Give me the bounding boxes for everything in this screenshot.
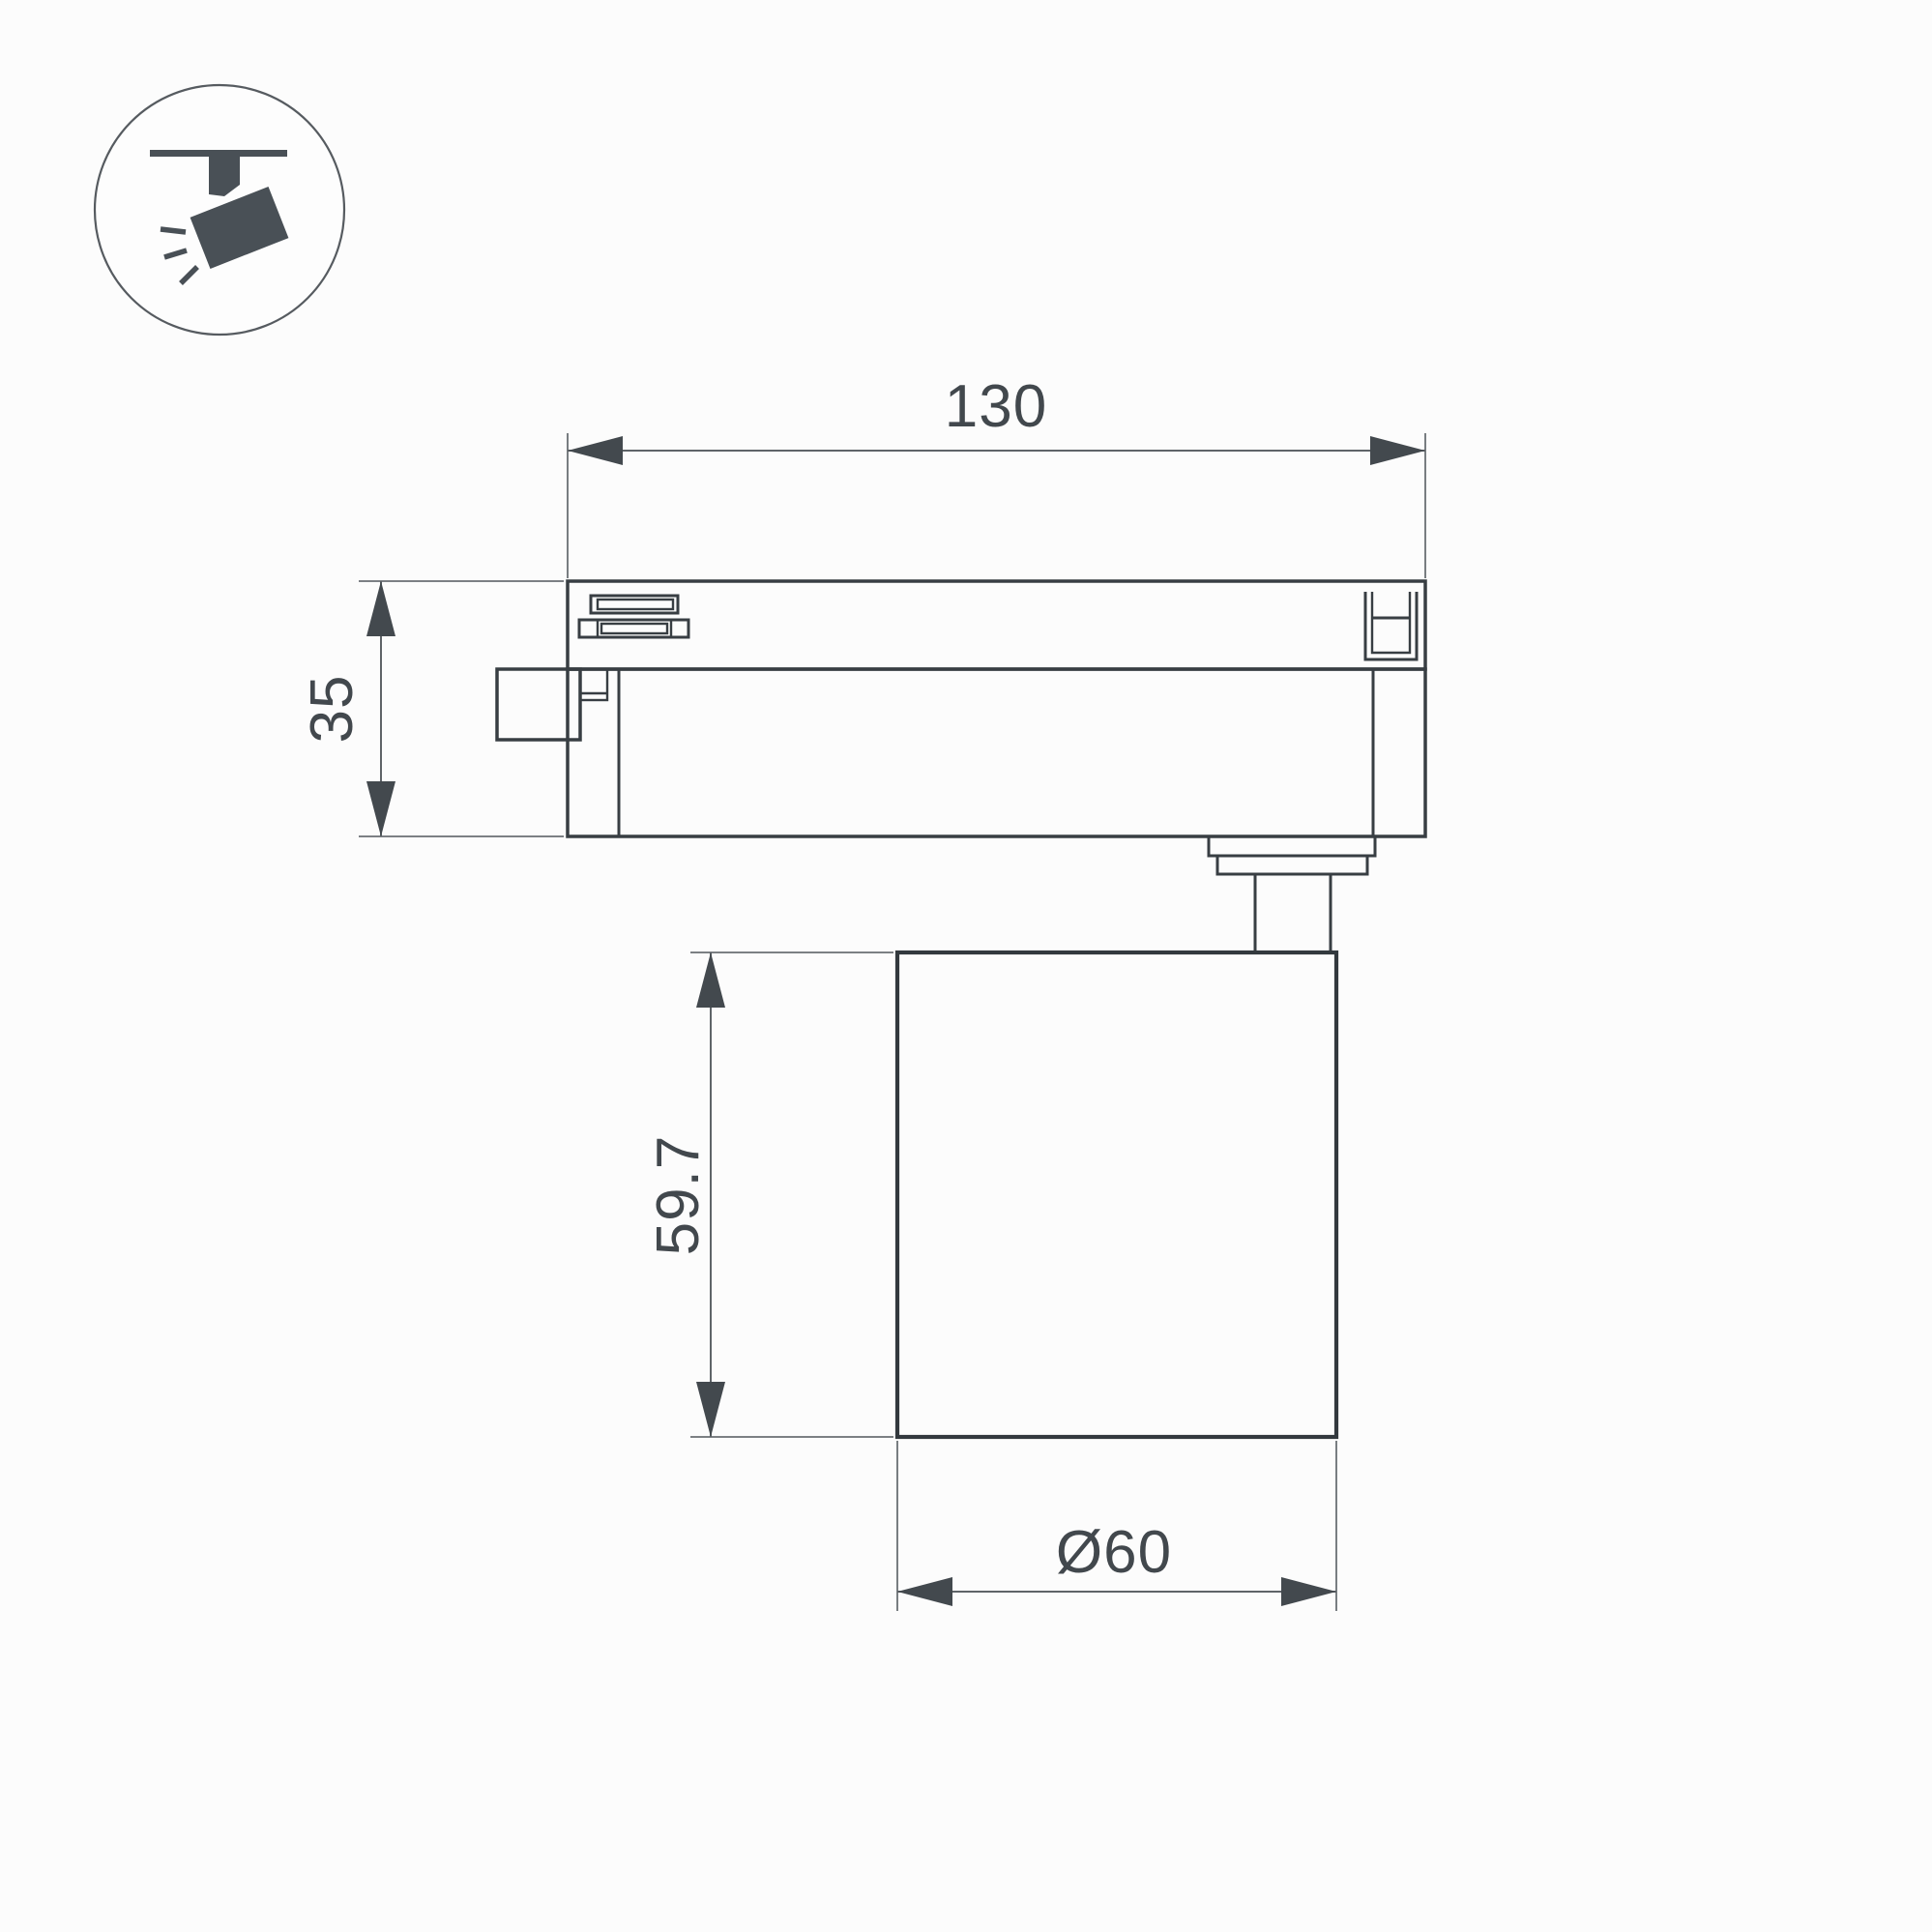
dimension-label-length: 130 (945, 373, 1047, 440)
adapter-contact-clip-inner (1372, 592, 1410, 653)
icon-ceiling-bar (150, 150, 287, 157)
fixture-track-adapter (568, 581, 1425, 669)
fixture-lamp-body (897, 952, 1336, 1437)
adapter-switch-upper (591, 596, 678, 613)
arrow-right (1281, 1577, 1336, 1606)
gearbox-housing (568, 669, 1425, 836)
swivel-stem (1255, 874, 1331, 952)
track-spotlight-icon (95, 85, 344, 335)
dimension-label-diameter: Ø60 (1056, 1519, 1172, 1586)
lamp-cylinder (897, 952, 1336, 1437)
arrow-right (1370, 436, 1425, 465)
swivel-step-lower (1217, 856, 1367, 874)
adapter-switch-lower-inner (601, 624, 667, 633)
arrow-left (897, 1577, 952, 1606)
fixture-gearbox (497, 669, 1425, 836)
fixture-swivel (1209, 836, 1375, 952)
swivel-step-upper (1209, 836, 1375, 856)
dimension-body-height: 59.7 (645, 952, 893, 1437)
arrow-down (366, 781, 395, 836)
dimension-adapter-height: 35 (299, 581, 564, 836)
adapter-housing (568, 581, 1425, 669)
arrow-up (696, 952, 725, 1008)
arrow-up (366, 581, 395, 636)
drawing-canvas: 130 35 59.7 Ø60 (0, 0, 1932, 1932)
dimension-length: 130 (568, 373, 1425, 578)
icon-light-ray (161, 229, 186, 232)
adapter-switch-upper-inner (598, 600, 673, 609)
lock-latch (580, 669, 607, 700)
dimension-label-adapter-height: 35 (299, 675, 366, 744)
arrow-down (696, 1382, 725, 1437)
arrow-left (568, 436, 623, 465)
dimension-diameter: Ø60 (897, 1441, 1336, 1611)
dimension-label-body-height: 59.7 (645, 1135, 712, 1256)
